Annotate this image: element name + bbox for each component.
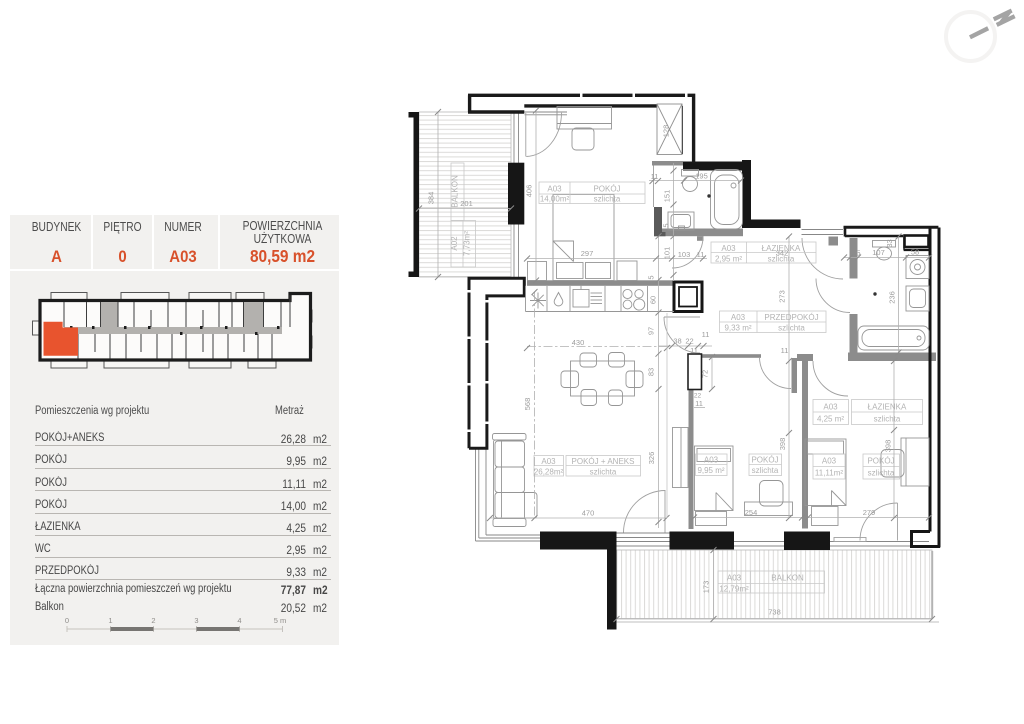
svg-text:384: 384	[427, 192, 436, 205]
svg-text:72: 72	[701, 370, 710, 378]
svg-text:POKÓJ: POKÓJ	[751, 456, 778, 465]
svg-text:A03: A03	[721, 244, 736, 253]
svg-text:szlichta: szlichta	[868, 469, 895, 478]
svg-text:236: 236	[888, 291, 897, 304]
svg-text:11: 11	[695, 399, 703, 408]
svg-text:38: 38	[673, 337, 681, 346]
svg-text:297: 297	[581, 249, 594, 258]
svg-text:11,11m²: 11,11m²	[815, 469, 843, 478]
svg-text:szlichta: szlichta	[874, 415, 901, 424]
svg-text:103: 103	[678, 250, 691, 259]
svg-text:A02: A02	[450, 236, 459, 251]
svg-text:szlichta: szlichta	[752, 466, 779, 475]
svg-text:33: 33	[885, 239, 894, 247]
svg-text:398: 398	[778, 438, 787, 451]
svg-text:107: 107	[872, 248, 885, 257]
svg-text:83: 83	[647, 368, 656, 376]
svg-text:9,95 m²: 9,95 m²	[697, 466, 724, 475]
svg-text:101: 101	[663, 247, 672, 260]
svg-text:5: 5	[662, 223, 671, 227]
svg-text:11: 11	[697, 250, 705, 259]
svg-text:szlichta: szlichta	[590, 468, 617, 477]
svg-text:A03: A03	[727, 574, 742, 583]
svg-text:PRZEDPOKÓJ: PRZEDPOKÓJ	[764, 313, 818, 322]
svg-text:151: 151	[663, 190, 672, 203]
svg-text:A03: A03	[541, 457, 556, 466]
svg-text:430: 430	[572, 338, 585, 347]
svg-text:273: 273	[778, 290, 787, 303]
svg-text:szlichta: szlichta	[778, 324, 805, 333]
svg-text:7,73m²: 7,73m²	[463, 231, 472, 256]
svg-text:58: 58	[911, 248, 919, 257]
svg-text:2,95 m²: 2,95 m²	[715, 255, 742, 264]
svg-text:5: 5	[856, 249, 860, 258]
svg-text:22: 22	[685, 337, 693, 346]
svg-text:128: 128	[662, 125, 671, 138]
svg-text:14,00m²: 14,00m²	[540, 195, 570, 204]
svg-text:A03: A03	[823, 403, 838, 412]
svg-text:11: 11	[702, 330, 710, 339]
svg-text:279: 279	[863, 508, 876, 517]
svg-text:POKÓJ: POKÓJ	[593, 185, 620, 194]
svg-text:11: 11	[690, 346, 698, 355]
svg-text:738: 738	[768, 608, 781, 617]
svg-text:BALKON: BALKON	[451, 175, 460, 208]
svg-text:568: 568	[523, 398, 532, 411]
svg-text:POKÓJ: POKÓJ	[867, 457, 894, 466]
svg-text:470: 470	[582, 509, 595, 518]
svg-text:9,33 m²: 9,33 m²	[724, 324, 751, 333]
svg-text:326: 326	[647, 452, 656, 465]
svg-text:342: 342	[776, 249, 789, 258]
svg-text:173: 173	[702, 581, 711, 594]
svg-text:ŁAZIENKA: ŁAZIENKA	[868, 403, 907, 412]
svg-text:A03: A03	[822, 457, 837, 466]
svg-text:A03: A03	[731, 313, 746, 322]
svg-text:5: 5	[647, 275, 656, 279]
svg-text:406: 406	[525, 185, 534, 198]
svg-text:26,28m²: 26,28m²	[534, 468, 564, 477]
svg-text:12,79m²: 12,79m²	[719, 585, 749, 594]
svg-text:POKÓJ + ANEKS: POKÓJ + ANEKS	[572, 457, 635, 466]
svg-text:195: 195	[695, 172, 708, 181]
svg-text:A03: A03	[547, 185, 562, 194]
svg-text:4,25 m²: 4,25 m²	[817, 415, 844, 424]
svg-text:11: 11	[781, 346, 789, 355]
svg-text:11: 11	[651, 172, 659, 181]
svg-text:BALKON: BALKON	[771, 574, 804, 583]
svg-text:201: 201	[460, 199, 473, 208]
svg-text:A03: A03	[704, 456, 719, 465]
svg-text:254: 254	[745, 508, 758, 517]
svg-text:398: 398	[884, 440, 893, 453]
svg-text:szlichta: szlichta	[594, 195, 621, 204]
svg-text:97: 97	[647, 327, 656, 335]
svg-text:60: 60	[649, 296, 658, 304]
